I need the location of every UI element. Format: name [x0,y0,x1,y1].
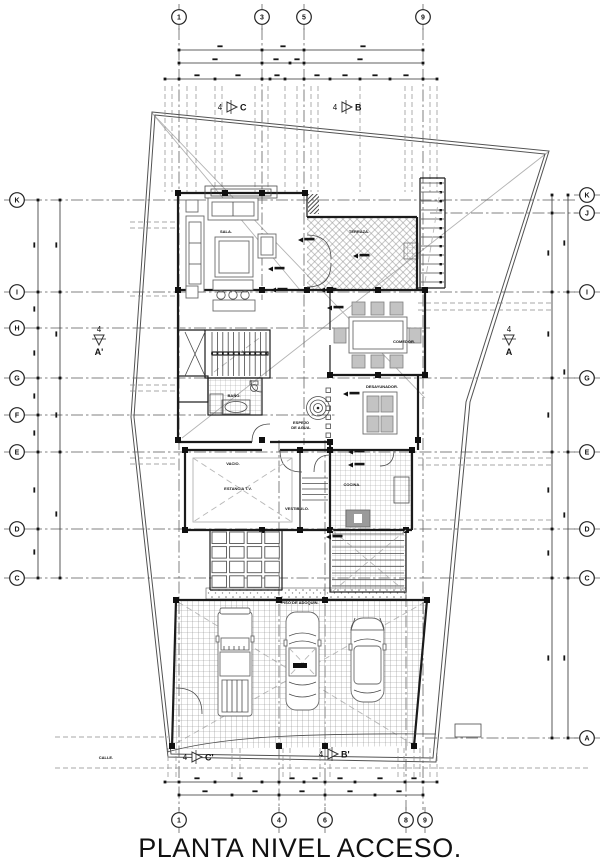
axis-marker-9: 9 [418,807,433,833]
sofa-top [208,198,258,220]
svg-text:3: 3 [260,15,264,22]
patio-grid [212,532,279,587]
svg-text:C': C' [205,753,214,763]
room-label: VESTIBULO. [285,506,309,511]
svg-text:4: 4 [97,325,102,334]
svg-text:8: 8 [404,818,408,825]
section-marker-A: 4A [502,325,516,357]
svg-text:K: K [14,198,19,205]
svg-text:4: 4 [507,325,512,334]
svg-text:B: B [355,103,362,113]
kitchen-tiles [331,451,411,529]
bar-counter [213,280,255,311]
axis-marker-1: 1 [172,807,187,833]
svg-text:I: I [16,290,18,297]
axis-marker-J: J [574,206,600,221]
svg-text:I: I [586,290,588,297]
axis-marker-F: F [4,408,30,423]
room-label: COMEDOR. [393,339,415,344]
svg-text:H: H [14,326,19,333]
axis-marker-E: E [574,445,600,460]
svg-text:6: 6 [323,818,327,825]
axis-marker-6: 6 [318,807,333,833]
axis-marker-1: 1 [172,4,187,30]
axis-marker-G: G [574,371,600,386]
axis-marker-K: K [4,193,30,208]
svg-text:1: 1 [177,15,181,22]
axis-marker-C: C [574,571,600,586]
section-marker-A': 4A' [92,325,106,357]
vehicles [216,608,386,716]
svg-text:C: C [14,576,19,583]
svg-text:9: 9 [421,15,425,22]
svg-text:9: 9 [423,818,427,825]
svg-text:C: C [240,103,247,113]
svg-text:F: F [15,413,20,420]
axis-marker-H: H [4,321,30,336]
room-label: COCINA. [344,482,361,487]
svg-text:G: G [584,376,590,383]
svg-text:4: 4 [183,753,188,762]
sofa-left [186,216,204,292]
axis-marker-9: 9 [416,4,431,30]
svg-text:J: J [585,211,589,218]
room-label: CALLE. [99,755,113,760]
axis-marker-D: D [4,522,30,537]
side-table-2 [186,286,198,298]
axis-marker-3: 3 [255,4,270,30]
armchair [258,234,276,258]
room-label: TERRAZA. [349,229,369,234]
axis-marker-I: I [4,285,30,300]
sedan-car [284,612,321,710]
svg-text:A: A [584,736,589,743]
level-marker [343,392,360,397]
svg-text:G: G [14,376,20,383]
svg-text:5: 5 [302,15,306,22]
room-label: SALA. [220,229,232,234]
svg-text:4: 4 [333,103,338,112]
room-label: DE AGUA. [291,425,310,430]
suv-car [349,618,386,702]
svg-text:B': B' [341,750,350,760]
room-label: ESTANCIA T.V. [224,486,252,491]
axis-marker-4: 4 [272,807,287,833]
side-table [186,200,198,212]
dining-set [334,302,421,368]
breakfast-set [363,392,397,434]
chimney-hatch [308,194,319,214]
axis-marker-8: 8 [399,807,414,833]
svg-text:D: D [584,527,589,534]
axis-marker-5: 5 [297,4,312,30]
svg-text:4: 4 [277,818,281,825]
svg-text:A': A' [95,347,104,357]
svg-text:E: E [15,450,20,457]
section-marker-B: 4B [333,100,362,114]
axis-marker-E: E [4,445,30,460]
svg-text:1: 1 [177,818,181,825]
svg-text:D: D [14,527,19,534]
svg-text:4: 4 [319,750,324,759]
axis-marker-D: D [574,522,600,537]
floor-plan-page: 135914689KIHGFEDCKJIGEDCA 4C4B4A'4A4C'4B… [0,0,600,865]
pickup-truck [216,608,254,716]
terrace-hatch [307,217,417,290]
room-label: BAÑO. [228,393,241,398]
svg-text:K: K [584,193,589,200]
svg-text:A: A [506,347,513,357]
section-marker-C: 4C [218,100,247,114]
room-label: DESAYUNADOR. [366,384,398,389]
svg-text:4: 4 [218,103,223,112]
room-label: VACIO. [226,461,239,466]
axis-marker-G: G [4,371,30,386]
axis-marker-C: C [4,571,30,586]
drawing-title: PLANTA NIVEL ACCESO. [138,833,462,863]
room-label: PISO DE ADOQUIN. [281,600,318,605]
svg-text:E: E [585,450,590,457]
svg-text:C: C [584,576,589,583]
level-marker [268,267,285,272]
floor-plan-drawing: 135914689KIHGFEDCKJIGEDCA 4C4B4A'4A4C'4B… [0,0,600,865]
axis-marker-I: I [574,285,600,300]
coffee-table [215,237,253,277]
section-marker-B': 4B' [319,747,350,761]
axis-marker-A: A [574,731,600,746]
axis-marker-K: K [574,188,600,203]
